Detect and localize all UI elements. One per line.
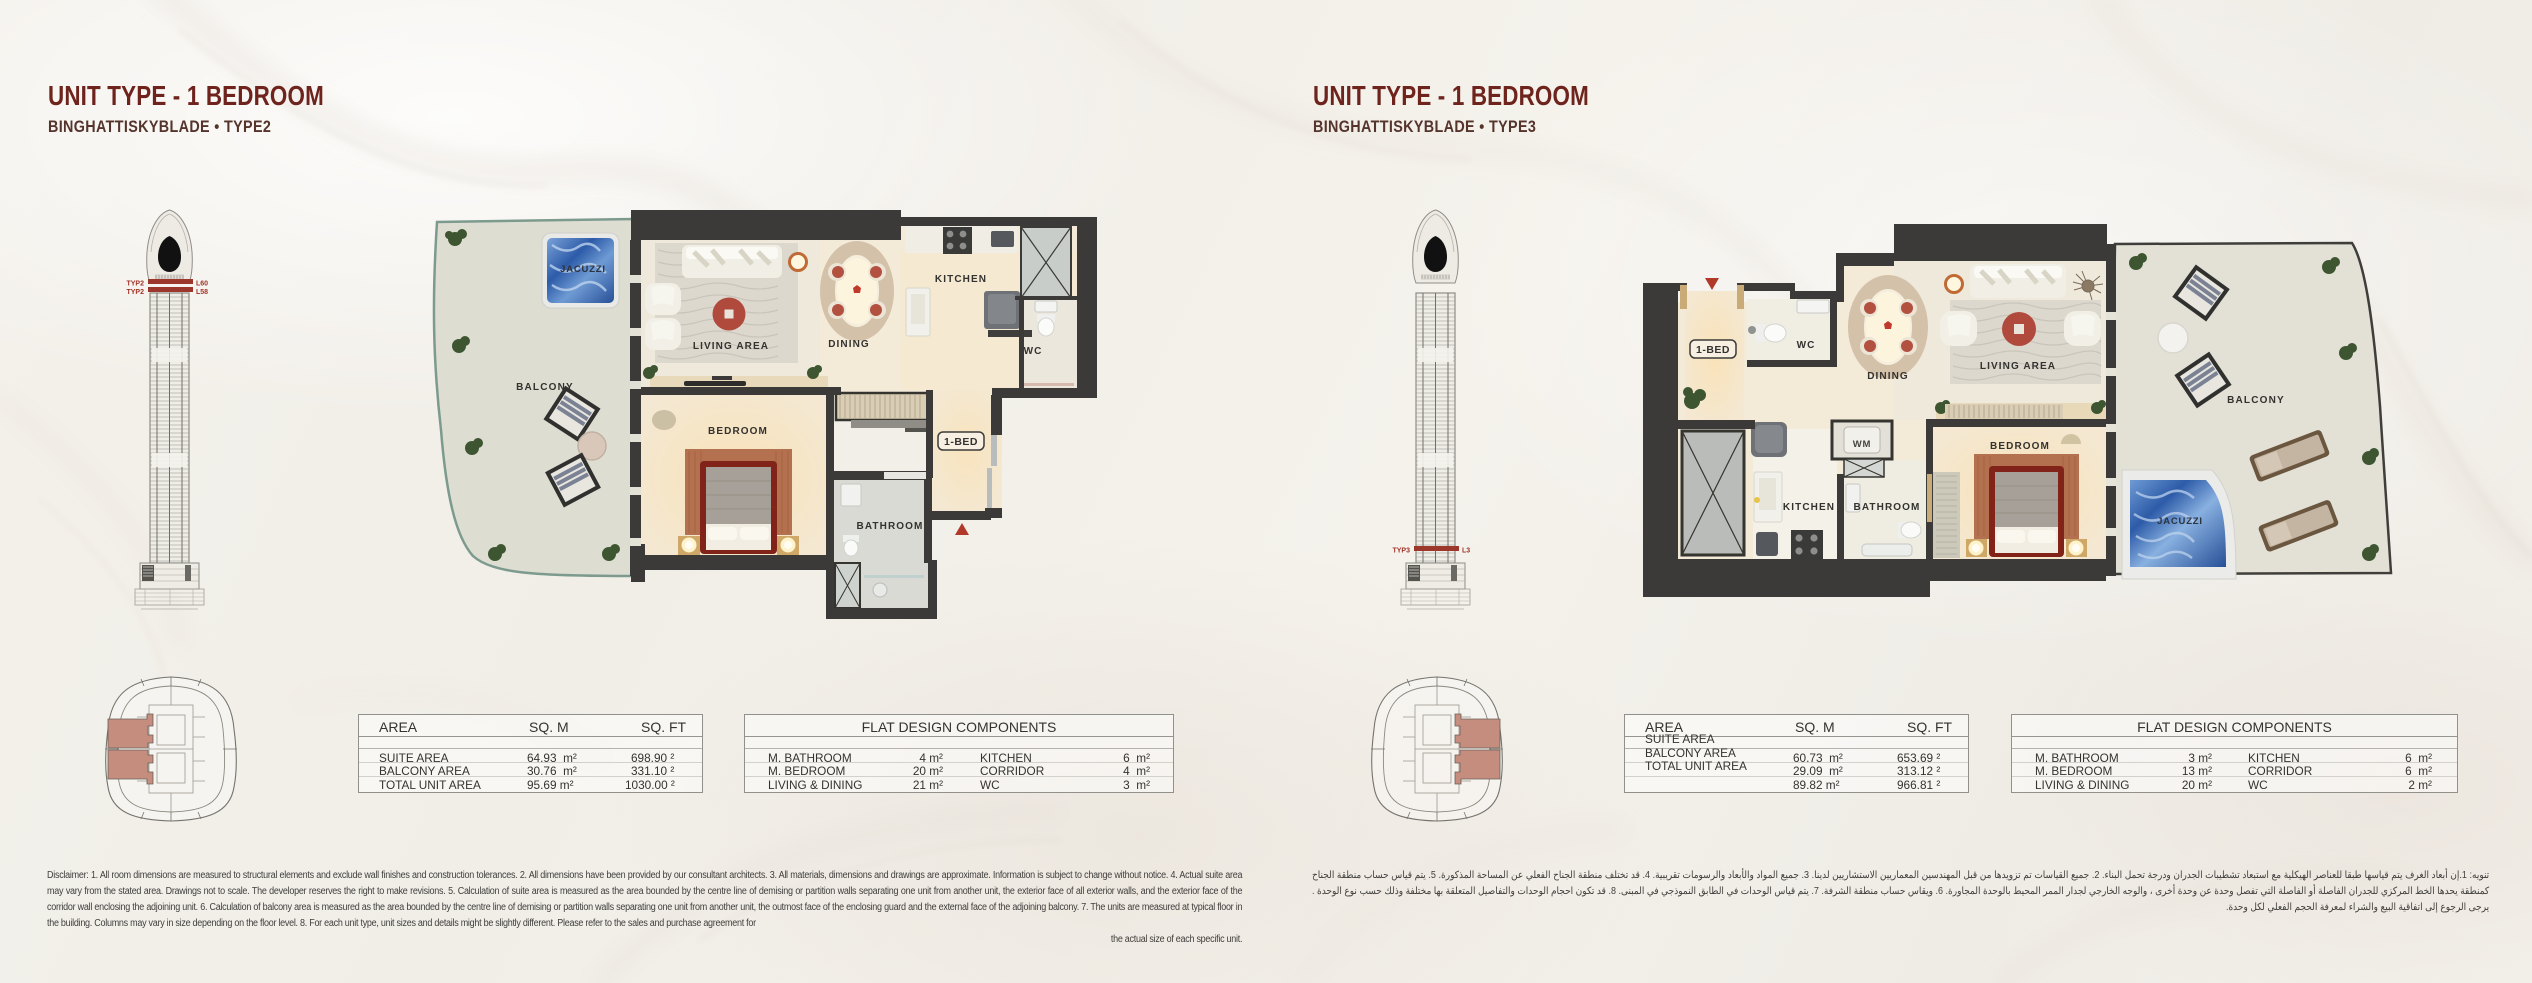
svg-text:BEDROOM: BEDROOM [1990, 441, 2050, 452]
svg-text:TYP2: TYP2 [126, 289, 144, 296]
svg-text:L58: L58 [196, 289, 208, 296]
svg-text:TYP3: TYP3 [1392, 548, 1410, 555]
svg-text:BEDROOM: BEDROOM [708, 426, 768, 437]
svg-text:KITCHEN: KITCHEN [1783, 502, 1835, 513]
svg-text:KITCHEN: KITCHEN [935, 274, 987, 285]
svg-text:WC: WC [1024, 346, 1043, 357]
svg-text:BATHROOM: BATHROOM [1854, 502, 1921, 513]
svg-text:BALCONY: BALCONY [516, 382, 574, 393]
svg-text:L3: L3 [1462, 548, 1470, 555]
svg-text:JACUZZI: JACUZZI [2157, 516, 2203, 527]
svg-text:LIVING AREA: LIVING AREA [693, 341, 769, 352]
svg-text:WC: WC [1797, 340, 1816, 351]
svg-text:BATHROOM: BATHROOM [857, 521, 924, 532]
svg-text:TYP2: TYP2 [126, 281, 144, 288]
svg-text:1-BED: 1-BED [944, 436, 978, 448]
svg-text:WM: WM [1853, 439, 1871, 450]
svg-text:DINING: DINING [828, 339, 870, 350]
svg-text:DINING: DINING [1867, 371, 1909, 382]
svg-text:L60: L60 [196, 281, 208, 288]
svg-text:BALCONY: BALCONY [2227, 395, 2285, 406]
svg-text:LIVING AREA: LIVING AREA [1980, 361, 2056, 372]
svg-text:JACUZZI: JACUZZI [560, 264, 606, 275]
svg-text:1-BED: 1-BED [1696, 344, 1730, 356]
